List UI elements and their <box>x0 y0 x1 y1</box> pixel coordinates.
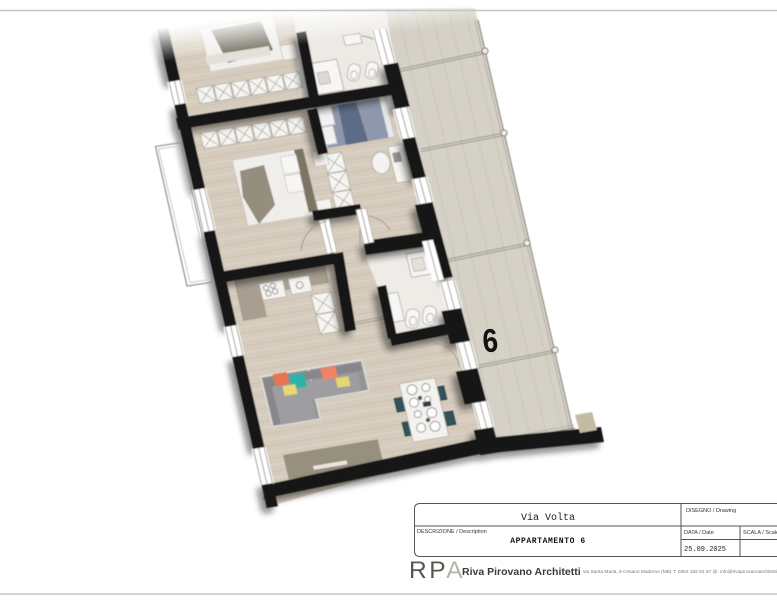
svg-text:DISEGNO / Drawing: DISEGNO / Drawing <box>686 508 736 514</box>
svg-text:RPA: RPA <box>409 557 465 584</box>
svg-text:via Santa Maria, 9 Cesano Made: via Santa Maria, 9 Cesano Maderno (MB) T… <box>583 569 777 575</box>
svg-text:DESCRIZIONE / Description: DESCRIZIONE / Description <box>417 529 487 535</box>
svg-text:Via Volta: Via Volta <box>521 512 575 524</box>
svg-text:APPARTAMENTO 6: APPARTAMENTO 6 <box>510 537 586 546</box>
svg-text:Riva Pirovano Architetti: Riva Pirovano Architetti <box>462 566 581 578</box>
svg-text:SCALA / Scale: SCALA / Scale <box>743 530 777 536</box>
svg-text:DATA / Date: DATA / Date <box>684 530 714 536</box>
svg-text:6: 6 <box>481 322 500 360</box>
svg-text:25.09.2025: 25.09.2025 <box>684 546 726 554</box>
